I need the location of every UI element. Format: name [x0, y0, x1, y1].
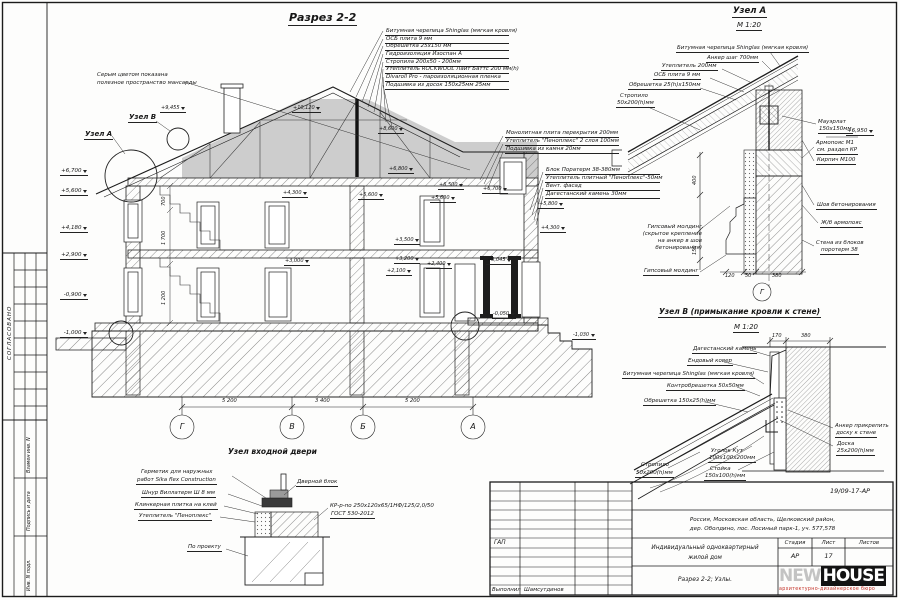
logo-new-text: NEW	[779, 566, 821, 586]
node-b-label: 100х100х200мм	[708, 455, 756, 463]
door-node-label: ГОСТ 530-2012	[330, 511, 375, 519]
dim-value: 1 700	[162, 231, 168, 245]
node-a-label: Армопояс М1	[816, 140, 854, 146]
node-b-label: Анкер прикрепить	[835, 423, 889, 429]
axis-bubble: Б	[351, 422, 375, 431]
elevation-mark: +6,950	[846, 128, 874, 136]
door-node-label: Клинкерная плитка на клей	[134, 502, 218, 510]
door-node-label: Шнур Виллатерм Ш 8 мм	[141, 490, 216, 498]
door-node-label: Дверной блок	[296, 479, 338, 487]
wall-note: Вент. фасад	[545, 183, 660, 191]
dim-value: 170	[772, 334, 782, 340]
node-a-label: Битумная черепица Shinglas (мягкая кровл…	[676, 45, 809, 53]
node-b-label: доску к стене	[835, 430, 877, 438]
door-node-label: Утеплитель "Пеноплекс"	[138, 513, 212, 521]
stamp-row-podpis: Подпись и дата	[27, 491, 33, 531]
elevation-mark: +3,200	[394, 257, 420, 264]
node-a-label: ОСБ плита 9 мм	[653, 72, 701, 80]
side-stamp-grid	[3, 253, 48, 596]
header-sheet: Лист	[812, 540, 845, 546]
dim-value: 380	[772, 274, 782, 280]
axis-bubble: А	[461, 422, 485, 431]
stage-value: АР	[778, 553, 812, 560]
elevation-mark: +2,400	[426, 262, 452, 269]
elevation-mark: +10,120	[292, 106, 321, 113]
elevation-mark: +3,000	[284, 259, 310, 266]
attic-note-line1: Серым цветом показана	[97, 72, 168, 78]
node-b-label: 25х200(h)мм	[836, 448, 875, 456]
elevation-mark: +2,900	[60, 252, 88, 260]
stamp-row-vzamen: Взамен инв. N	[27, 437, 33, 473]
dim-value: 380	[801, 334, 811, 340]
role-vypolnil: Выполнил	[492, 587, 521, 593]
elevation-mark: +5,800	[538, 202, 564, 209]
attic-note-line2: полезное пространство мансарды	[97, 80, 197, 86]
elevation-mark: +4,300	[282, 191, 308, 198]
door-node-label: работ Sika flex Construction	[136, 477, 217, 485]
node-a-label: бетонирования)	[616, 245, 702, 251]
node-b-scale: М 1:20	[733, 323, 759, 333]
company-logo: NEWHOUSE архитектурно-дизайнерское бюро	[779, 566, 891, 594]
elevation-mark: -0,900	[60, 292, 88, 300]
elevation-mark: -0,050	[492, 312, 516, 319]
node-a-label: Мауэрлат	[818, 119, 846, 125]
node-b-label: 50х200(h)мм	[635, 470, 674, 478]
node-a-label: поротерм 38	[820, 247, 859, 255]
callout-node-a: Узел А	[84, 130, 113, 140]
object-name-line2: жилой дом	[632, 555, 778, 562]
axis-dim: 3 400	[315, 399, 330, 405]
elevation-mark: -1,000	[60, 330, 88, 338]
linework	[0, 0, 900, 600]
wall-note: Блок Поратерм 38-380мм	[545, 167, 660, 175]
node-a-label: Ж/б армопояс	[820, 220, 863, 228]
elevation-mark: +6,700	[482, 187, 508, 194]
sheet-value: 17	[812, 553, 845, 560]
node-a-label: 50х200(h)мм	[616, 100, 655, 108]
elevation-mark: +5,600	[60, 188, 88, 196]
node-b-label: Контробрешетка 50х50мм	[666, 383, 745, 391]
node-b-label: 150х100(h)мм	[704, 473, 746, 481]
dim-value: 400	[693, 175, 699, 185]
axis-bubble: В	[280, 422, 304, 431]
dim-value: 50	[745, 274, 751, 280]
node-a-label: Гипсовый молдинг	[643, 268, 699, 276]
door-node-title: Узел входной двери	[228, 448, 317, 457]
elevation-mark: +6,800	[388, 167, 414, 174]
dim-value: 1 200	[162, 291, 168, 305]
section-drawing	[56, 31, 592, 439]
roof-layer: Подшивка из досок 150х25мм 25мм	[385, 82, 509, 90]
axis-bubble: Г	[170, 422, 194, 431]
elevation-mark: -1,030	[572, 333, 596, 340]
elevation-mark: +3,045	[486, 258, 512, 265]
node-a-label: см. раздел КР	[816, 147, 858, 155]
node-a-label: Обрешетка 25(h)х150мм	[628, 82, 701, 90]
doc-number: 19/09-17-АР	[830, 488, 870, 495]
elevation-mark: +4,300	[540, 226, 566, 233]
node-b-label: Обрешетка 150х25(h)мм	[643, 398, 716, 406]
node-b-label: Ендовый ковер	[687, 358, 733, 366]
elevation-mark: +3,500	[394, 238, 420, 245]
node-b-title: Узел В (примыкание кровли к стене)	[658, 308, 821, 318]
node-a-label: Утеплитель 200мм	[661, 63, 718, 71]
logo-house-text: HOUSE	[821, 566, 886, 586]
node-a-label: на анкер в шов	[616, 238, 702, 244]
dim-value: 120	[725, 274, 735, 280]
elevation-mark: +5,600	[430, 196, 456, 203]
node-b-label: Битумная черепица Shinglas (мягкая кровл…	[622, 371, 755, 379]
node-b-label: Доска	[837, 441, 854, 447]
logo-tagline: архитектурно-дизайнерское бюро	[779, 587, 891, 592]
node-a-label: Анкер шаг 700мм	[706, 55, 759, 63]
slab-note: Утеплитель "Пеноплекс" 2 слоя 100мм	[505, 138, 619, 146]
drawing-sheet: СОГЛАСОВАНО Взамен инв. N Подпись и дата…	[0, 0, 900, 600]
node-b-label: Дагестанский камень	[692, 346, 757, 354]
object-name-line1: Индивидуальный одноквартирный	[632, 545, 778, 552]
axis-bubble: Г	[750, 288, 774, 296]
elevation-mark: +6,500	[438, 183, 464, 190]
door-node-drawing	[220, 474, 330, 585]
axis-dim: 5 200	[405, 399, 420, 405]
node-a-label: Шов бетонирования	[816, 202, 877, 210]
elevation-mark: +9,455	[160, 106, 186, 113]
node-b-label: Стропило	[641, 462, 669, 468]
slab-note: Монолитная плита перекрытия 200мм	[505, 130, 619, 138]
wall-note: Утеплитель плитный "Пеноплекс"-50мм	[545, 175, 660, 183]
node-a-label: Гипсовый молдинг	[616, 224, 702, 230]
door-node-label: КР-р-по 250х120х65/1НФ/125/2,0/50	[330, 503, 434, 509]
roof-layer: Обрешетка 25х150 мм	[385, 43, 509, 51]
dim-value: 700	[162, 196, 168, 206]
roof-layer: Гидроизоляция Изоспан А	[385, 51, 509, 59]
elevation-mark: +5,600	[358, 193, 384, 200]
stamp-row-inv: Инв. N подл.	[27, 559, 33, 591]
roof-layer: Утеплитель ROCKWOOL Лайт Баттс 200 мм(h)	[385, 66, 509, 74]
dim-value: 150	[693, 245, 699, 255]
node-a-label: Стропило	[620, 93, 648, 99]
roof-layer: Divaroll Pro - пароизоляционная пленка	[385, 74, 509, 82]
author-name: Шамсутдинов	[524, 587, 564, 593]
wall-note: Дагестанский камень 30мм	[545, 191, 660, 199]
approved-stamp: СОГЛАСОВАНО	[7, 306, 13, 360]
roof-layer: Битумная черепица Shinglas (мягкая кровл…	[385, 28, 509, 36]
section-title: Разрез 2-2	[288, 12, 357, 26]
node-a-scale: М 1:20	[736, 21, 762, 31]
elevation-mark: +4,180	[60, 225, 88, 233]
elevation-mark: +8,600	[378, 127, 404, 134]
sheet-title: Разрез 2-2; Узлы.	[632, 577, 778, 584]
elevation-mark: +2,100	[386, 269, 412, 276]
node-b-label: Уголок Кут	[711, 448, 743, 454]
node-b-label: Стойка	[710, 466, 731, 472]
elevation-mark: +6,700	[60, 168, 88, 176]
node-a-label: Стена из блоков	[816, 240, 864, 246]
project-address-line2: дер. Оболдино, пос. Лосиный парк-1, уч. …	[632, 526, 893, 532]
role-gap: ГАП	[494, 540, 506, 547]
node-a-title: Узел А	[732, 7, 767, 18]
door-node-label: По проекту	[187, 544, 222, 552]
door-node-label: Герметик для наружных	[141, 469, 213, 475]
header-sheets: Листов	[845, 540, 893, 546]
node-a-label: (скрытое крепление	[616, 231, 702, 237]
header-stage: Стадия	[778, 540, 812, 546]
callout-node-b: Узел В	[128, 113, 157, 123]
project-address-line1: Россия, Московская область, Щелковский р…	[632, 517, 893, 523]
axis-dim: 5 200	[222, 399, 237, 405]
node-a-label: Кирпич М100	[816, 157, 856, 165]
slab-note: Подшивка из камня 20мм	[505, 146, 619, 154]
